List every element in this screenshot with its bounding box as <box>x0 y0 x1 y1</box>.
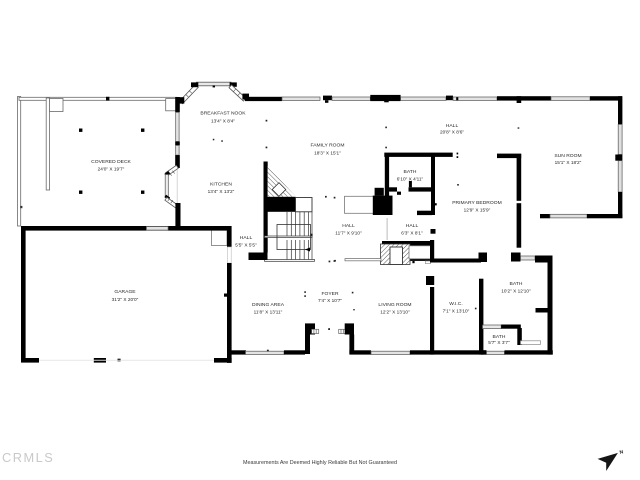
svg-text:7'4" X 10'7": 7'4" X 10'7" <box>318 298 342 303</box>
svg-text:GARAGE: GARAGE <box>114 289 136 295</box>
svg-text:CRMLS: CRMLS <box>2 450 54 465</box>
svg-text:12'9" X 15'9": 12'9" X 15'9" <box>464 207 491 212</box>
svg-text:10'2" X 12'10": 10'2" X 12'10" <box>501 288 531 293</box>
svg-text:20'8" X 8'6": 20'8" X 8'6" <box>440 129 464 134</box>
svg-text:18'3" X 15'1": 18'3" X 15'1" <box>314 151 341 156</box>
svg-text:KITCHEN: KITCHEN <box>210 181 232 187</box>
svg-text:6'10" X 4'11": 6'10" X 4'11" <box>397 176 424 181</box>
svg-text:13'4" X 8'4": 13'4" X 8'4" <box>211 119 235 124</box>
svg-text:5'5" X 5'5": 5'5" X 5'5" <box>235 242 257 247</box>
svg-text:HALL: HALL <box>342 223 355 229</box>
svg-text:15'1" X 18'2": 15'1" X 18'2" <box>555 160 582 165</box>
svg-text:HALL: HALL <box>406 223 419 229</box>
svg-text:BATH: BATH <box>404 169 417 175</box>
svg-text:PRIMARY BEDROOM: PRIMARY BEDROOM <box>452 200 502 206</box>
svg-text:31'2" X 20'0": 31'2" X 20'0" <box>112 297 139 302</box>
svg-text:7'1" X 13'10": 7'1" X 13'10" <box>443 308 470 313</box>
svg-text:6'3" X 8'1": 6'3" X 8'1" <box>401 231 423 236</box>
svg-text:HALL: HALL <box>240 235 253 241</box>
svg-text:12'2" X 13'10": 12'2" X 13'10" <box>380 309 410 314</box>
svg-text:FOYER: FOYER <box>321 291 339 297</box>
svg-text:DINING AREA: DINING AREA <box>252 302 285 308</box>
svg-text:W.I.C.: W.I.C. <box>449 301 463 307</box>
svg-text:Measurements Are Deemed Highly: Measurements Are Deemed Highly Reliable … <box>243 460 397 466</box>
svg-text:FAMILY ROOM: FAMILY ROOM <box>310 143 344 149</box>
svg-text:13'4" X 13'2": 13'4" X 13'2" <box>208 189 235 194</box>
svg-text:COVERED DECK: COVERED DECK <box>91 159 131 165</box>
svg-text:SUN ROOM: SUN ROOM <box>554 153 581 159</box>
svg-text:LIVING ROOM: LIVING ROOM <box>378 302 411 308</box>
svg-text:11'7" X 9'10": 11'7" X 9'10" <box>335 231 362 236</box>
svg-text:BATH: BATH <box>493 334 506 340</box>
svg-text:HALL: HALL <box>446 123 459 129</box>
svg-text:24'0" X 19'7": 24'0" X 19'7" <box>98 166 125 171</box>
svg-text:BATH: BATH <box>510 281 523 287</box>
svg-text:BREAKFAST NOOK: BREAKFAST NOOK <box>200 110 246 116</box>
svg-text:5'7" X 3'7": 5'7" X 3'7" <box>488 340 510 345</box>
svg-text:11'8" X 13'11": 11'8" X 13'11" <box>254 309 283 314</box>
